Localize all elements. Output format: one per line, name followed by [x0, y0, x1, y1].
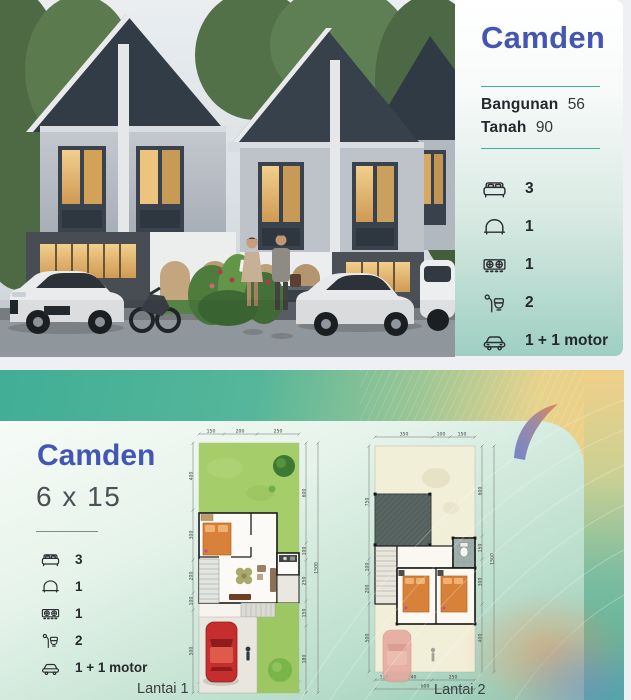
- car-icon: [481, 330, 511, 353]
- svg-text:400: 400: [478, 634, 484, 643]
- svg-text:100: 100: [302, 547, 308, 556]
- area-block: Bangunan 56 Tanah 90: [481, 93, 585, 139]
- svg-text:180: 180: [302, 655, 308, 664]
- plan-label-lantai-1: Lantai 1: [137, 681, 189, 697]
- svg-text:600: 600: [302, 489, 308, 498]
- divider: [481, 86, 600, 87]
- stove-icon: [481, 254, 511, 277]
- entry-steps: [241, 603, 275, 617]
- red-car-top-view: [206, 622, 237, 682]
- spec-list: 3 1: [40, 546, 147, 681]
- building-label: Bangunan: [481, 96, 558, 113]
- svg-text:100: 100: [365, 563, 371, 572]
- bathroom: [453, 538, 475, 568]
- svg-text:150: 150: [302, 609, 308, 618]
- svg-text:600: 600: [421, 683, 430, 689]
- spec-panel: Camden Bangunan 56 Tanah 90: [455, 0, 623, 356]
- svg-text:350: 350: [400, 431, 409, 437]
- land-area-row: Tanah 90: [481, 116, 585, 139]
- svg-text:100: 100: [189, 597, 195, 606]
- building-value: 56: [568, 96, 585, 113]
- right-gradient-strip: [584, 370, 624, 700]
- kitchen-counter: [279, 555, 297, 562]
- building-area-row: Bangunan 56: [481, 93, 585, 116]
- roof-below: [375, 494, 431, 546]
- house-exterior-photo: [0, 0, 455, 357]
- plot-size: 6 x 15: [36, 481, 121, 513]
- brochure-page: Camden Bangunan 56 Tanah 90: [0, 0, 631, 700]
- plan-label-lantai-2: Lantai 2: [434, 682, 486, 698]
- shower-toilet-icon: [40, 632, 64, 650]
- spec-row-bedrooms: 3: [40, 546, 147, 573]
- spec-row-livingroom: 1: [481, 208, 608, 246]
- svg-text:150: 150: [458, 431, 467, 437]
- svg-text:600: 600: [478, 487, 484, 496]
- floorplan-section: Camden 6 x 15 3: [0, 370, 624, 700]
- terrace: [277, 575, 299, 603]
- spec-row-bedrooms: 3: [481, 170, 608, 208]
- floorplan-card: Camden 6 x 15 3: [0, 421, 584, 700]
- svg-text:200: 200: [189, 572, 195, 581]
- stairs: [375, 546, 397, 604]
- svg-text:750: 750: [365, 498, 371, 507]
- floorplan-lantai-2: 350 100 150 750 100 200 500 600 150 300 …: [361, 428, 507, 700]
- spec-row-carport: 1 + 1 motor: [481, 322, 608, 360]
- svg-text:200: 200: [236, 428, 245, 434]
- double-bed-icon: [481, 178, 511, 201]
- car-icon: [40, 659, 64, 677]
- spec-row-kitchen: 1: [481, 246, 608, 284]
- sofa-icon: [40, 578, 64, 596]
- svg-text:1500: 1500: [490, 553, 496, 565]
- svg-text:250: 250: [274, 428, 283, 434]
- svg-text:300: 300: [478, 578, 484, 587]
- spec-row-bathrooms: 2: [481, 284, 608, 322]
- svg-text:500: 500: [189, 647, 195, 656]
- garden-tree: [268, 658, 292, 682]
- ghost-car: [383, 630, 411, 682]
- svg-text:150: 150: [207, 428, 216, 434]
- floorplan-title: Camden: [37, 439, 155, 473]
- divider: [36, 531, 98, 532]
- sofa-icon: [481, 216, 511, 239]
- house-type-title: Camden: [481, 20, 605, 56]
- vignette: [0, 300, 455, 357]
- hero-section: Camden Bangunan 56 Tanah 90: [0, 0, 623, 356]
- svg-text:400: 400: [189, 472, 195, 481]
- bedrooms: [397, 568, 475, 624]
- svg-text:300: 300: [189, 531, 195, 540]
- spec-row-livingroom: 1: [40, 573, 147, 600]
- svg-text:1500: 1500: [314, 562, 320, 574]
- side-garden: [275, 603, 299, 617]
- svg-text:250: 250: [449, 674, 458, 680]
- double-bed-icon: [40, 551, 64, 569]
- stove-icon: [40, 605, 64, 623]
- land-label: Tanah: [481, 119, 527, 136]
- spec-row-kitchen: 1: [40, 600, 147, 627]
- shower-toilet-icon: [481, 292, 511, 315]
- svg-text:500: 500: [365, 634, 371, 643]
- spec-row-carport: 1 + 1 motor: [40, 654, 147, 681]
- stairs: [199, 559, 219, 603]
- svg-text:250: 250: [302, 577, 308, 586]
- hallway: [397, 546, 453, 568]
- svg-text:100: 100: [437, 431, 446, 437]
- floorplan-lantai-1: 150 200 250 400 300 200 100 500 600 100 …: [185, 423, 331, 699]
- divider: [481, 148, 600, 149]
- svg-text:200: 200: [365, 585, 371, 594]
- land-value: 90: [536, 119, 553, 136]
- spec-row-bathrooms: 2: [40, 627, 147, 654]
- spec-list: 3 1: [481, 170, 608, 360]
- svg-text:150: 150: [478, 544, 484, 553]
